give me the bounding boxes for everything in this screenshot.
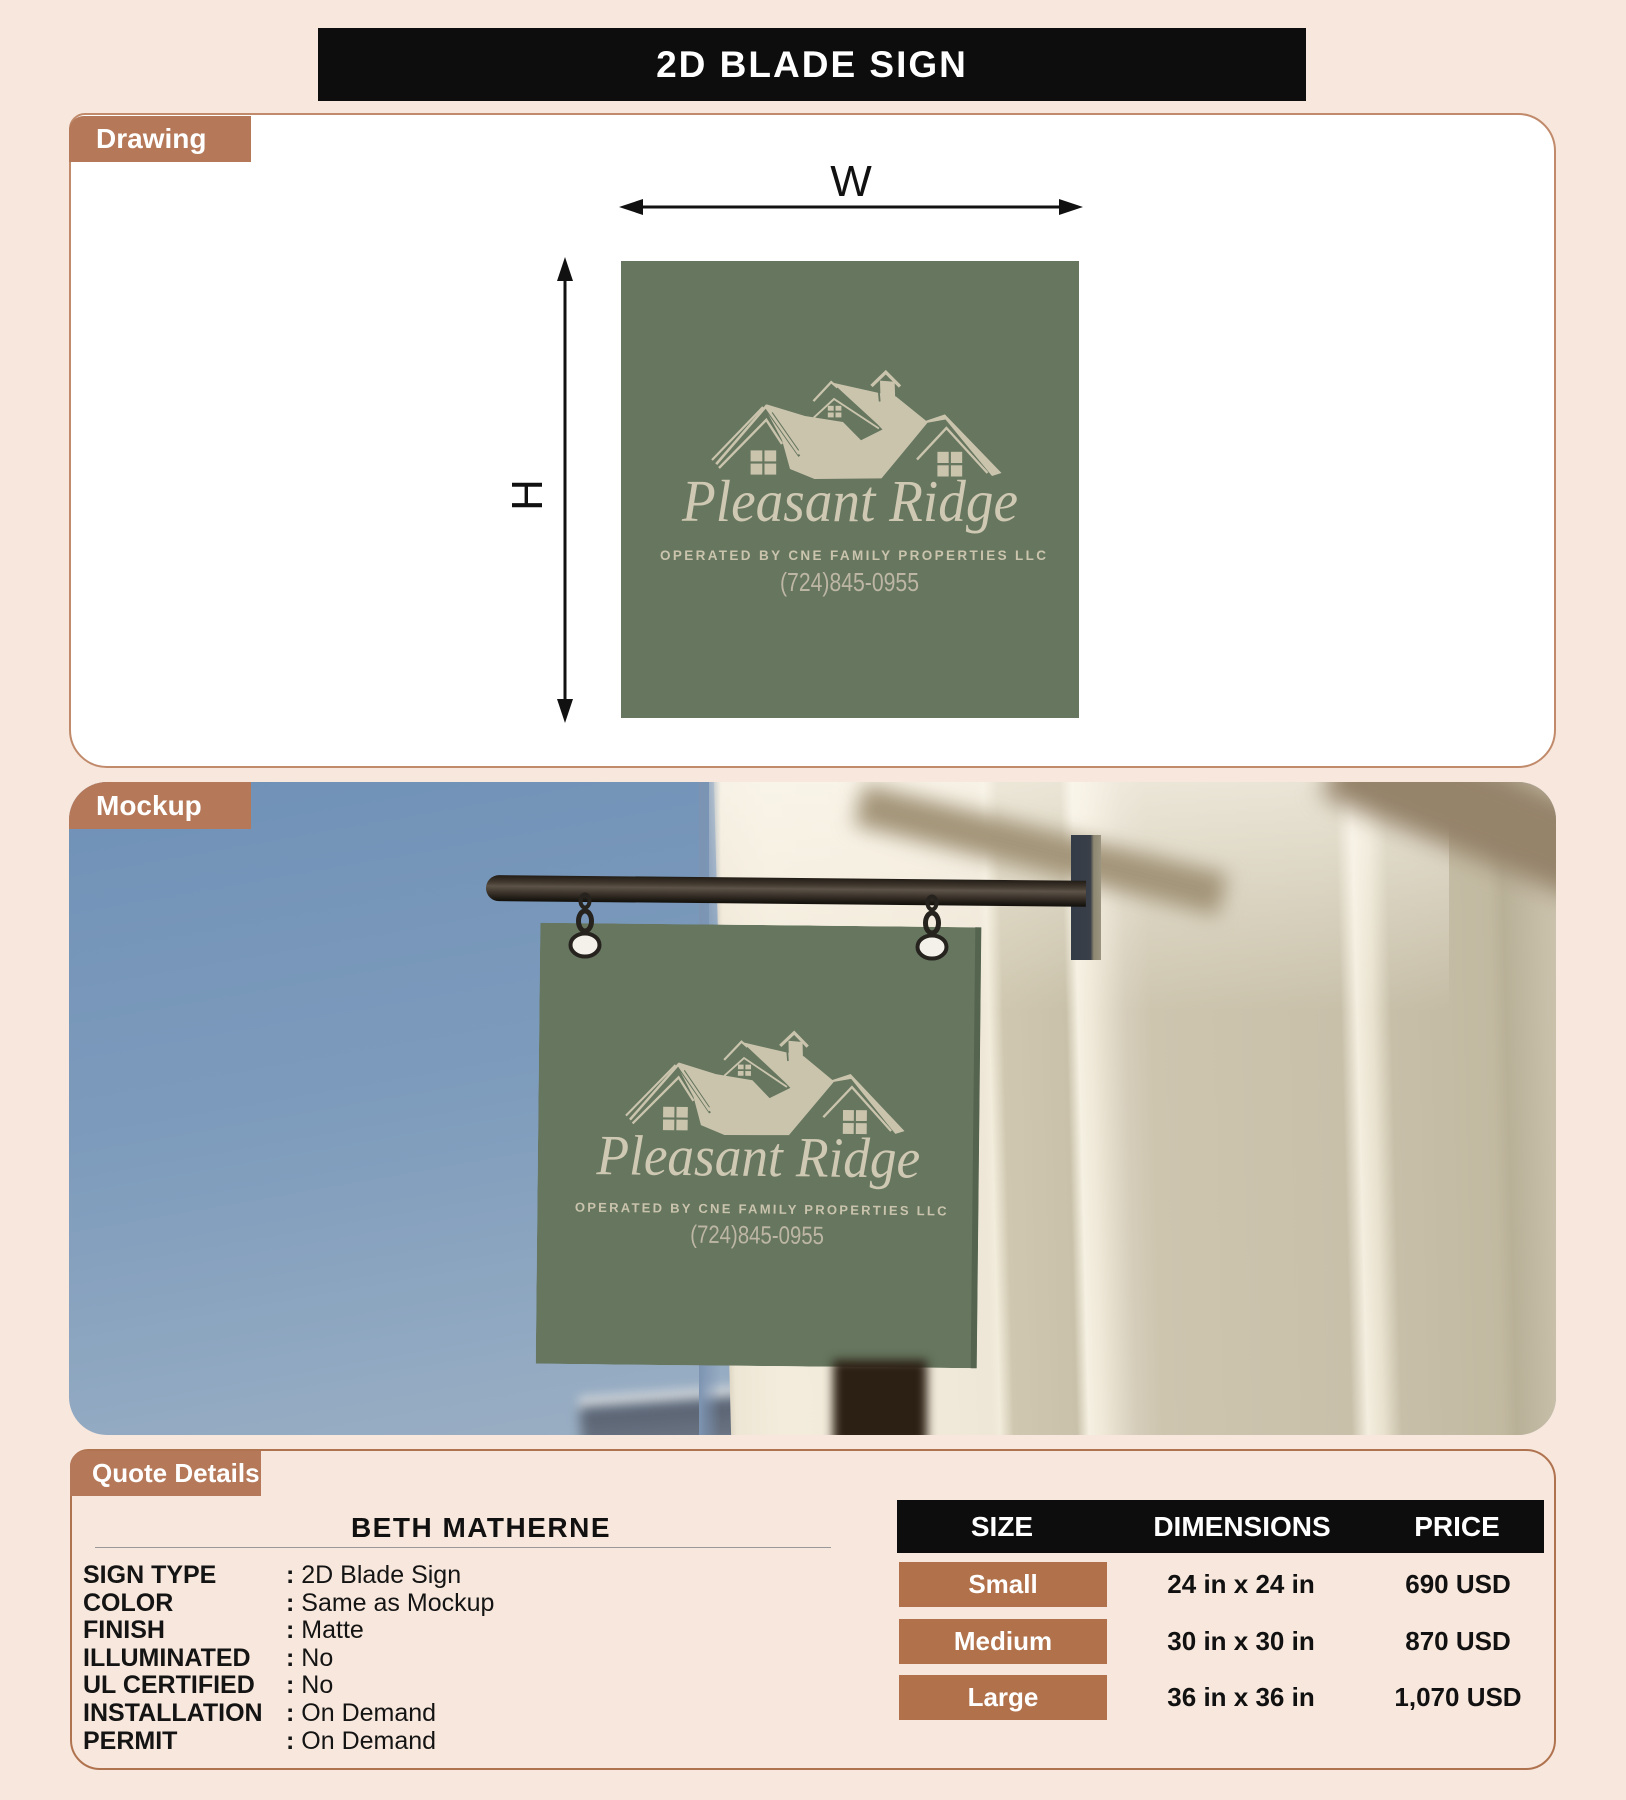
svg-text:W: W [830, 157, 872, 206]
svg-text:H: H [510, 479, 552, 511]
